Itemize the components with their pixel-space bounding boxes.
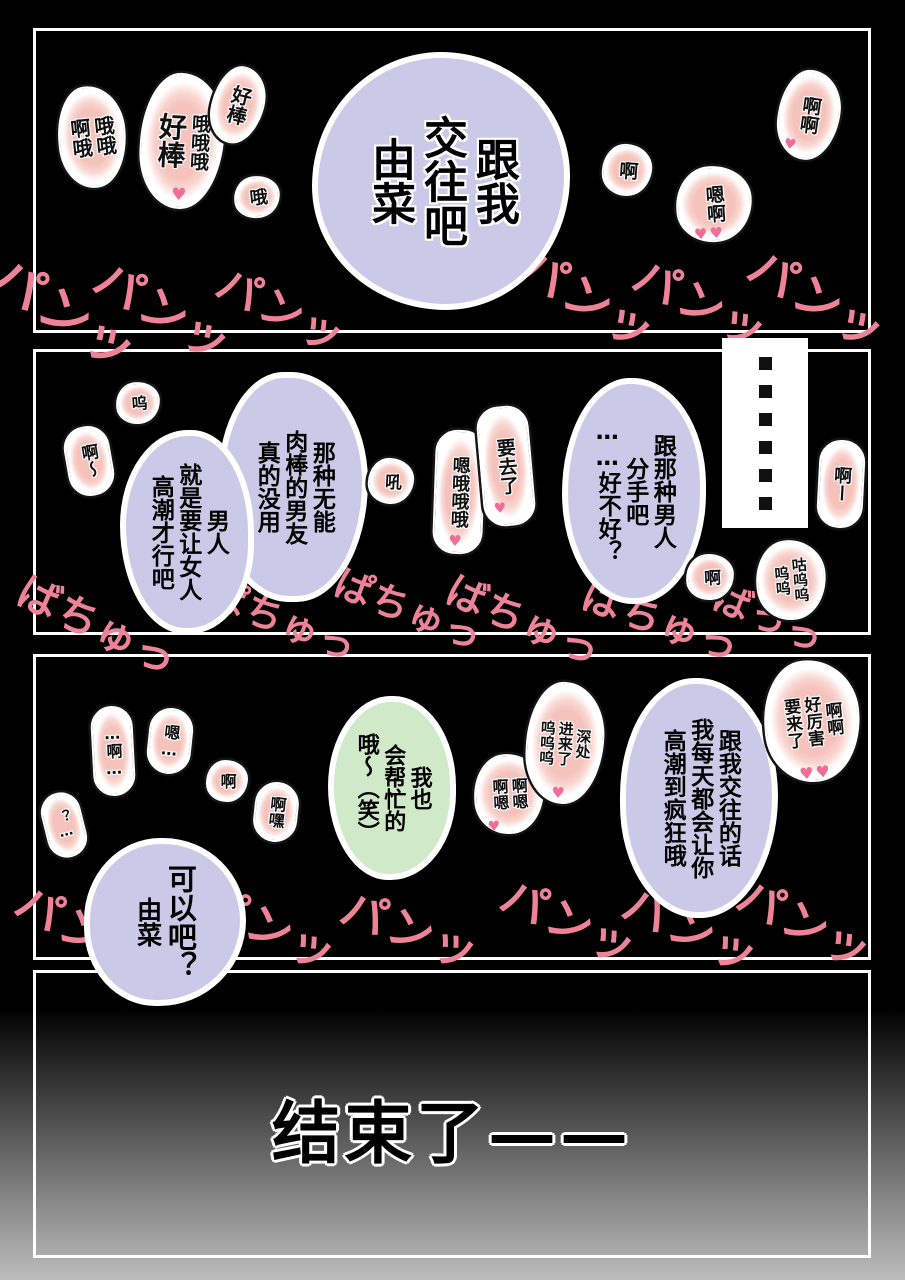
ellipsis-dot: [759, 497, 772, 510]
ending-text: 结束了——: [272, 1078, 632, 1177]
ellipsis-dot: [759, 357, 772, 370]
heart-icon: ♥: [171, 185, 189, 206]
heart-icon: ♥: [448, 532, 464, 551]
heart-icon: ♥: [551, 783, 567, 802]
heart-icon: ♥: [493, 500, 509, 517]
ellipsis-dot: [759, 441, 772, 454]
moan-burst: 要去了 ♥: [475, 404, 537, 528]
manga-page: パンッ パンッ パンッ パンッ パンッ パンッ 哦哦啊哦 哦哦哦好棒 ♥ 好棒 …: [0, 0, 905, 1280]
speech-bubble-confession: 跟我交往吧由菜: [312, 52, 570, 310]
ellipsis-dot: [759, 385, 772, 398]
ellipsis-dot: [759, 469, 772, 482]
moan-burst: 啊ー: [816, 439, 867, 529]
pause-ellipsis-box: ……: [722, 338, 808, 528]
heart-icon: ♥: [487, 818, 502, 835]
ellipsis-dot: [759, 413, 772, 426]
moan-burst: …啊…: [90, 705, 137, 797]
speech-bubble-make-her-climax: 男人就是要让女人高潮才行吧: [120, 430, 254, 634]
heart-icon: ♥: [783, 136, 800, 154]
heart-icon: ♥♥: [693, 223, 725, 243]
heart-icon: ♥♥: [798, 761, 832, 783]
speech-bubble-breakup: 跟那种男人分手吧……好不好？: [562, 378, 706, 604]
speech-bubble-help: 我也会帮忙的哦～（笑）: [328, 696, 456, 880]
speech-bubble-promise: 跟我交往的话我每天都会让你高潮到疯狂哦: [620, 678, 778, 918]
